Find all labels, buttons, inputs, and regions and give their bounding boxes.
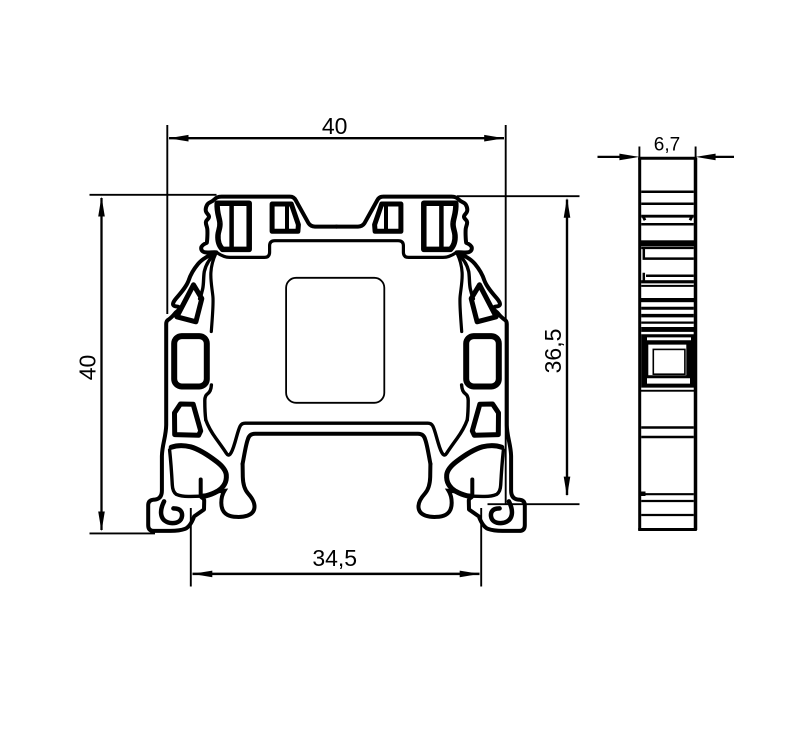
svg-text:34,5: 34,5 (312, 545, 357, 571)
svg-text:6,7: 6,7 (654, 134, 680, 155)
svg-text:40: 40 (74, 355, 100, 381)
svg-text:36,5: 36,5 (540, 329, 566, 374)
svg-text:40: 40 (322, 113, 348, 139)
